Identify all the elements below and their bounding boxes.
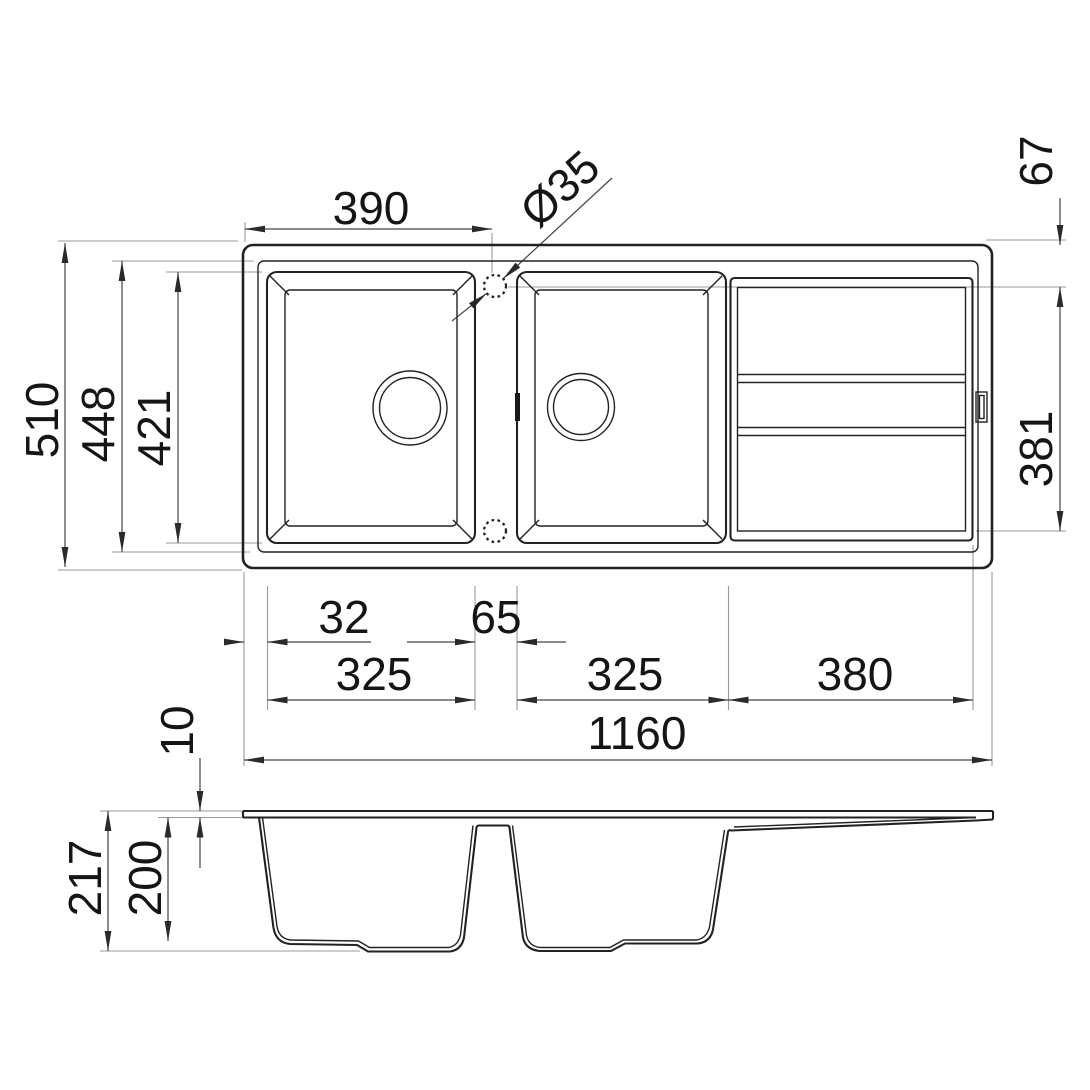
drainer-board [731,278,973,541]
dim-10-label: 10 [151,705,203,756]
tap-hole-top [484,275,506,297]
bowl-2 [517,272,726,543]
tap-hole-bottom [484,520,506,542]
dim-tap-diameter-label: Ø35 [510,140,609,237]
dimension-lines [65,178,1060,951]
dim-510-label: 510 [16,382,68,459]
dim-325-left-label: 325 [336,648,413,700]
dim-421-label: 421 [128,390,180,467]
bowl-1 [267,272,475,543]
bowls-profile-inner [263,818,977,948]
dim-217-label: 217 [59,840,111,917]
dim-380-label: 380 [817,648,894,700]
dim-200-label: 200 [119,840,171,917]
bowls-profile-outer [259,818,993,952]
dim-448-label: 448 [72,386,124,463]
bowl-1-drain [373,371,447,445]
dim-390-label: 390 [333,182,410,234]
top-view [243,245,992,568]
center-tick-mark [515,393,520,421]
bowl-2-drain [548,374,615,441]
sink-technical-drawing: 390 Ø35 67 510 448 421 381 32 65 325 325… [0,0,1090,1090]
dim-65-label: 65 [470,591,521,643]
extension-lines [58,222,1066,951]
dim-1160-label: 1160 [588,707,687,759]
sink-inner-rim [258,261,978,552]
dim-381-label: 381 [1010,411,1062,488]
dim-67-label: 67 [1010,135,1062,186]
dim-325-right-label: 325 [587,648,664,700]
side-view [243,811,993,952]
sink-outer-edge [243,245,992,568]
dim-32-label: 32 [318,591,369,643]
rim-plate [243,811,993,820]
